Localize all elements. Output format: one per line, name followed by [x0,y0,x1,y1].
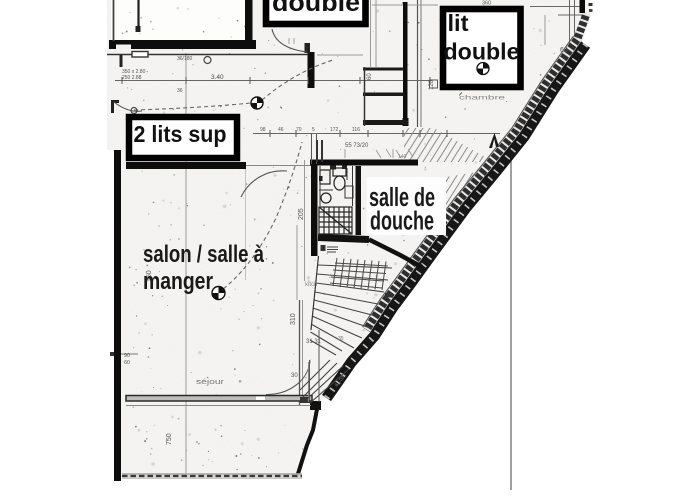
svg-text:5: 5 [312,127,315,133]
svg-text:205: 205 [298,208,305,220]
svg-text:360: 360 [482,1,491,7]
svg-text:chambre: chambre [459,95,506,102]
svg-text:36/180: 36/180 [177,56,193,62]
svg-text:60: 60 [560,47,568,54]
svg-text:98: 98 [260,127,266,133]
svg-text:55 73/20: 55 73/20 [345,143,369,149]
svg-text:46: 46 [278,127,284,133]
svg-text:2 lits sup: 2 lits sup [134,121,227,147]
svg-text:172: 172 [330,127,339,133]
svg-text:60: 60 [367,73,373,80]
svg-text:30: 30 [291,373,298,379]
svg-text:140: 140 [398,154,407,160]
svg-text:31 31: 31 31 [306,339,322,345]
svg-text:90: 90 [124,353,130,359]
svg-text:250 2.88: 250 2.88 [122,75,142,81]
svg-text:60: 60 [124,360,130,366]
svg-text:3.40: 3.40 [211,74,224,81]
svg-text:kitch: kitch [305,282,317,288]
svg-text:116: 116 [352,127,360,133]
svg-text:750: 750 [166,433,173,445]
svg-text:310: 310 [290,313,297,325]
svg-text:séjour: séjour [196,379,225,386]
svg-text:douche: douche [370,208,434,236]
svg-text:35: 35 [338,336,344,342]
svg-text:70: 70 [296,127,302,133]
svg-text:manger: manger [143,268,213,295]
svg-text:double: double [272,0,360,17]
svg-text:lit: lit [448,10,469,36]
svg-text:36: 36 [177,88,183,94]
svg-text:salon / salle à: salon / salle à [143,241,264,268]
svg-text:double: double [444,38,520,64]
